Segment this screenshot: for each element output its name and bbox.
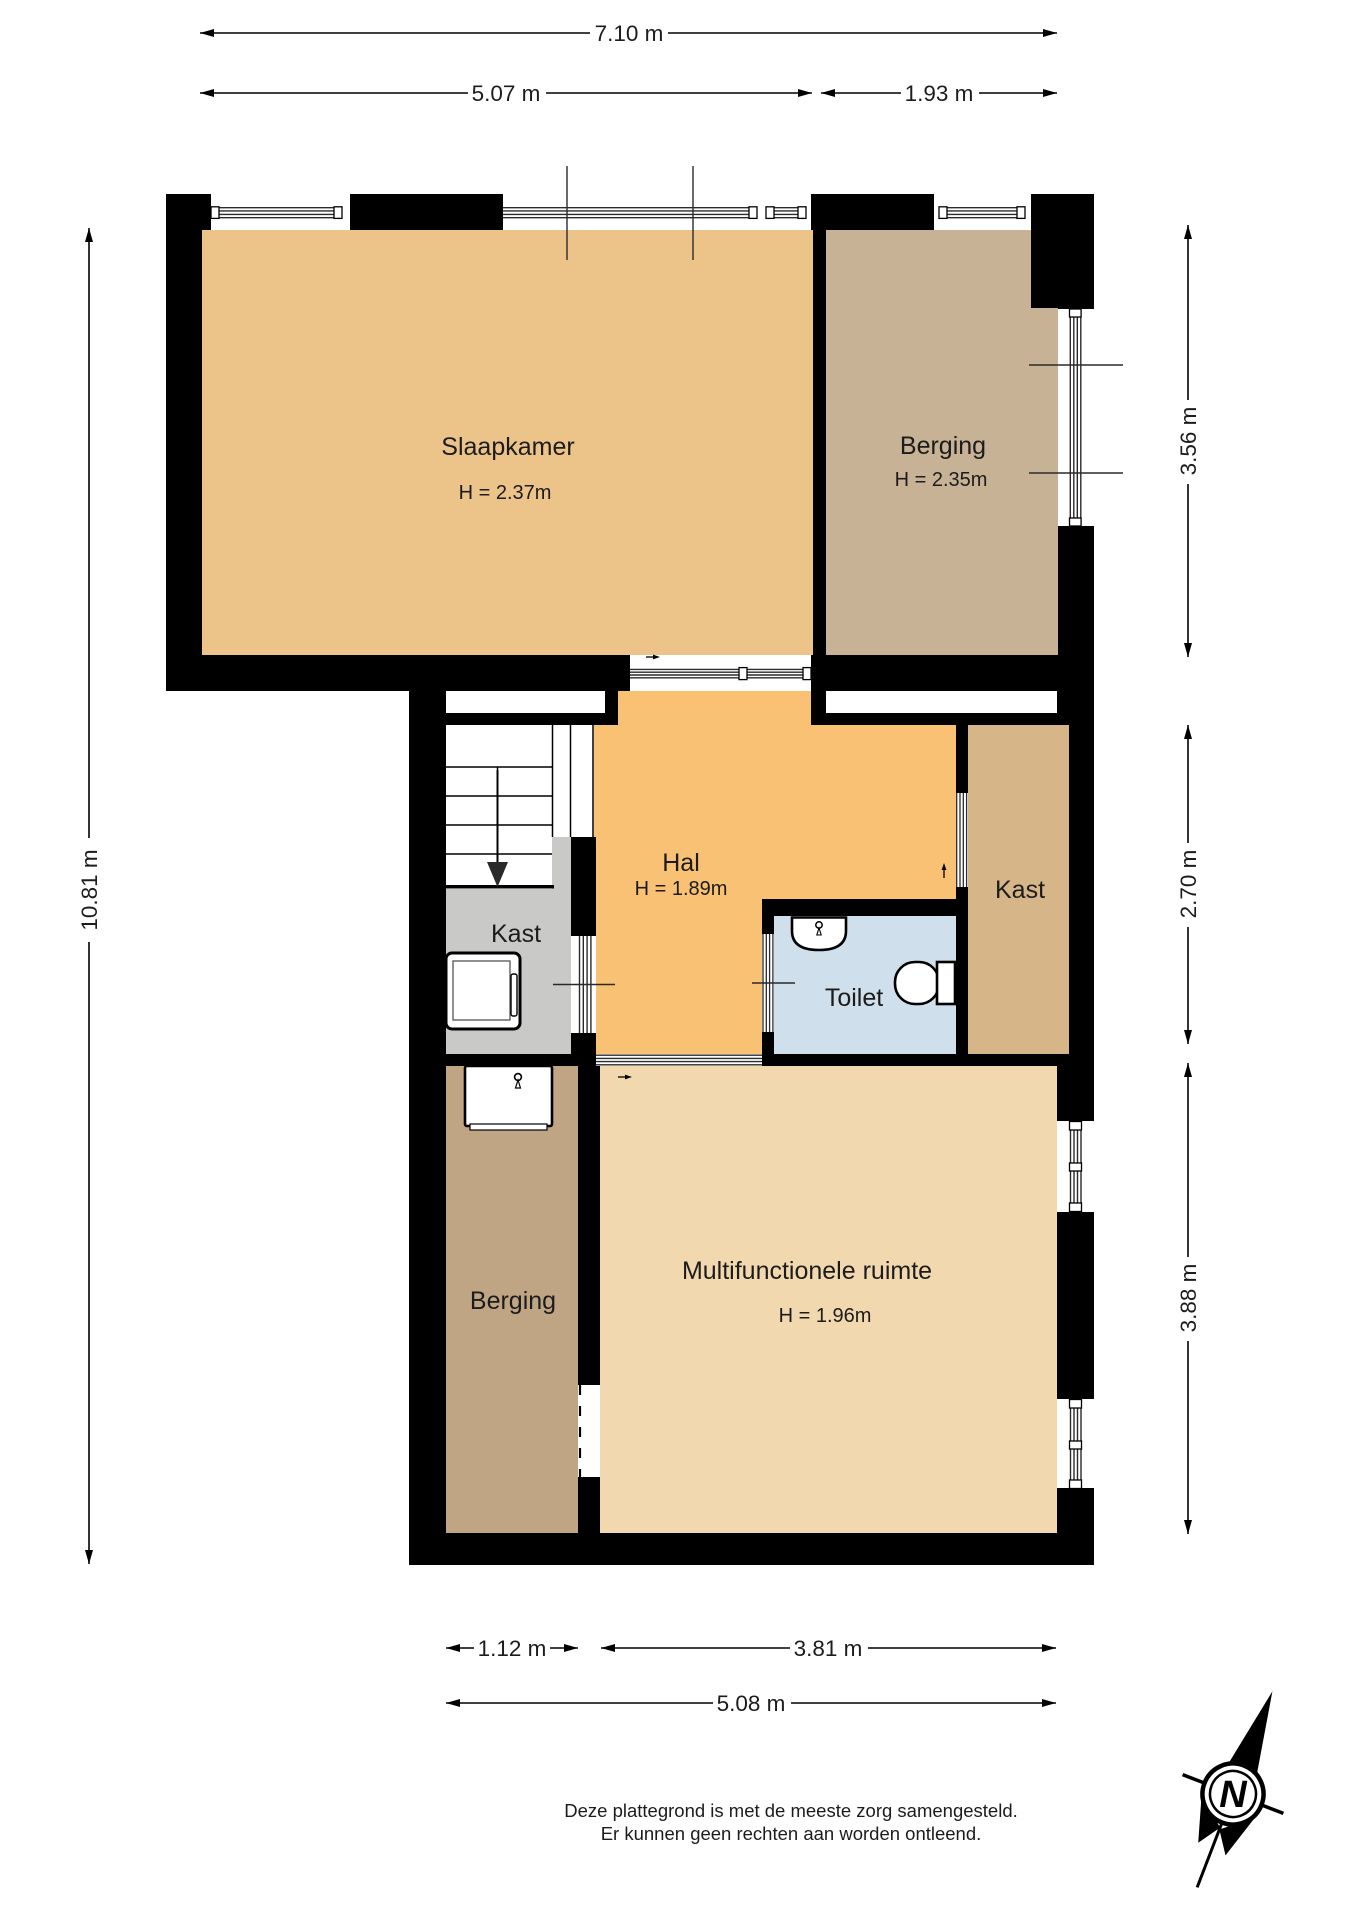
- svg-text:Hal: Hal: [662, 849, 700, 877]
- svg-text:H = 2.35m: H = 2.35m: [895, 469, 988, 491]
- svg-text:3.88 m: 3.88 m: [1176, 1264, 1201, 1333]
- svg-text:1.93 m: 1.93 m: [905, 81, 974, 106]
- svg-text:7.10 m: 7.10 m: [595, 21, 664, 46]
- svg-text:2.70 m: 2.70 m: [1176, 850, 1201, 919]
- svg-text:Multifunctionele ruimte: Multifunctionele ruimte: [682, 1257, 932, 1285]
- svg-text:Er kunnen geen rechten aan wor: Er kunnen geen rechten aan worden ontlee…: [601, 1823, 982, 1844]
- svg-text:Toilet: Toilet: [825, 984, 883, 1012]
- svg-text:Deze plattegrond is met de mee: Deze plattegrond is met de meeste zorg s…: [564, 1800, 1018, 1821]
- svg-text:5.08 m: 5.08 m: [717, 1691, 786, 1716]
- svg-text:H = 1.89m: H = 1.89m: [635, 878, 728, 900]
- svg-text:3.56 m: 3.56 m: [1176, 407, 1201, 476]
- svg-text:3.81 m: 3.81 m: [794, 1636, 863, 1661]
- svg-text:N: N: [1219, 1774, 1248, 1816]
- svg-text:Berging: Berging: [470, 1287, 556, 1315]
- svg-text:H = 1.96m: H = 1.96m: [779, 1305, 872, 1327]
- svg-text:10.81 m: 10.81 m: [77, 849, 102, 930]
- svg-text:1.12 m: 1.12 m: [478, 1636, 547, 1661]
- svg-text:5.07 m: 5.07 m: [472, 81, 541, 106]
- svg-text:Slaapkamer: Slaapkamer: [441, 433, 574, 461]
- svg-text:H = 2.37m: H = 2.37m: [459, 482, 552, 504]
- svg-text:Kast: Kast: [491, 920, 541, 948]
- svg-text:Berging: Berging: [900, 432, 986, 460]
- svg-text:Kast: Kast: [995, 876, 1045, 904]
